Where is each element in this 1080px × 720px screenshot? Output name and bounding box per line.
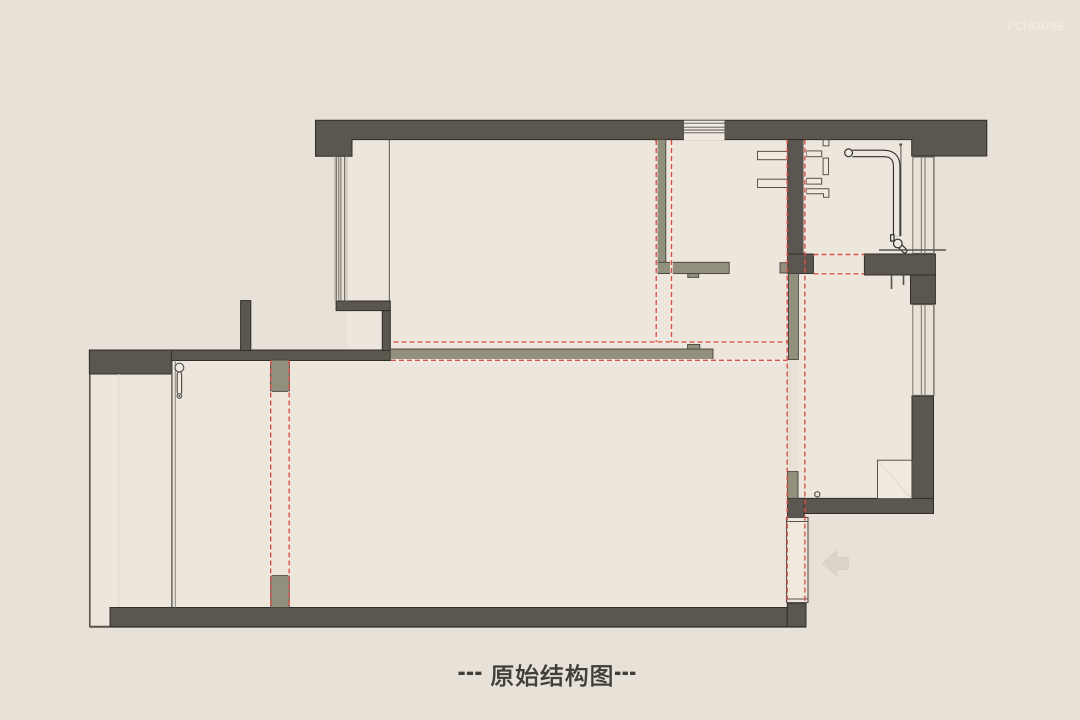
svg-text:PCHOUSE: PCHOUSE [1007,20,1065,33]
